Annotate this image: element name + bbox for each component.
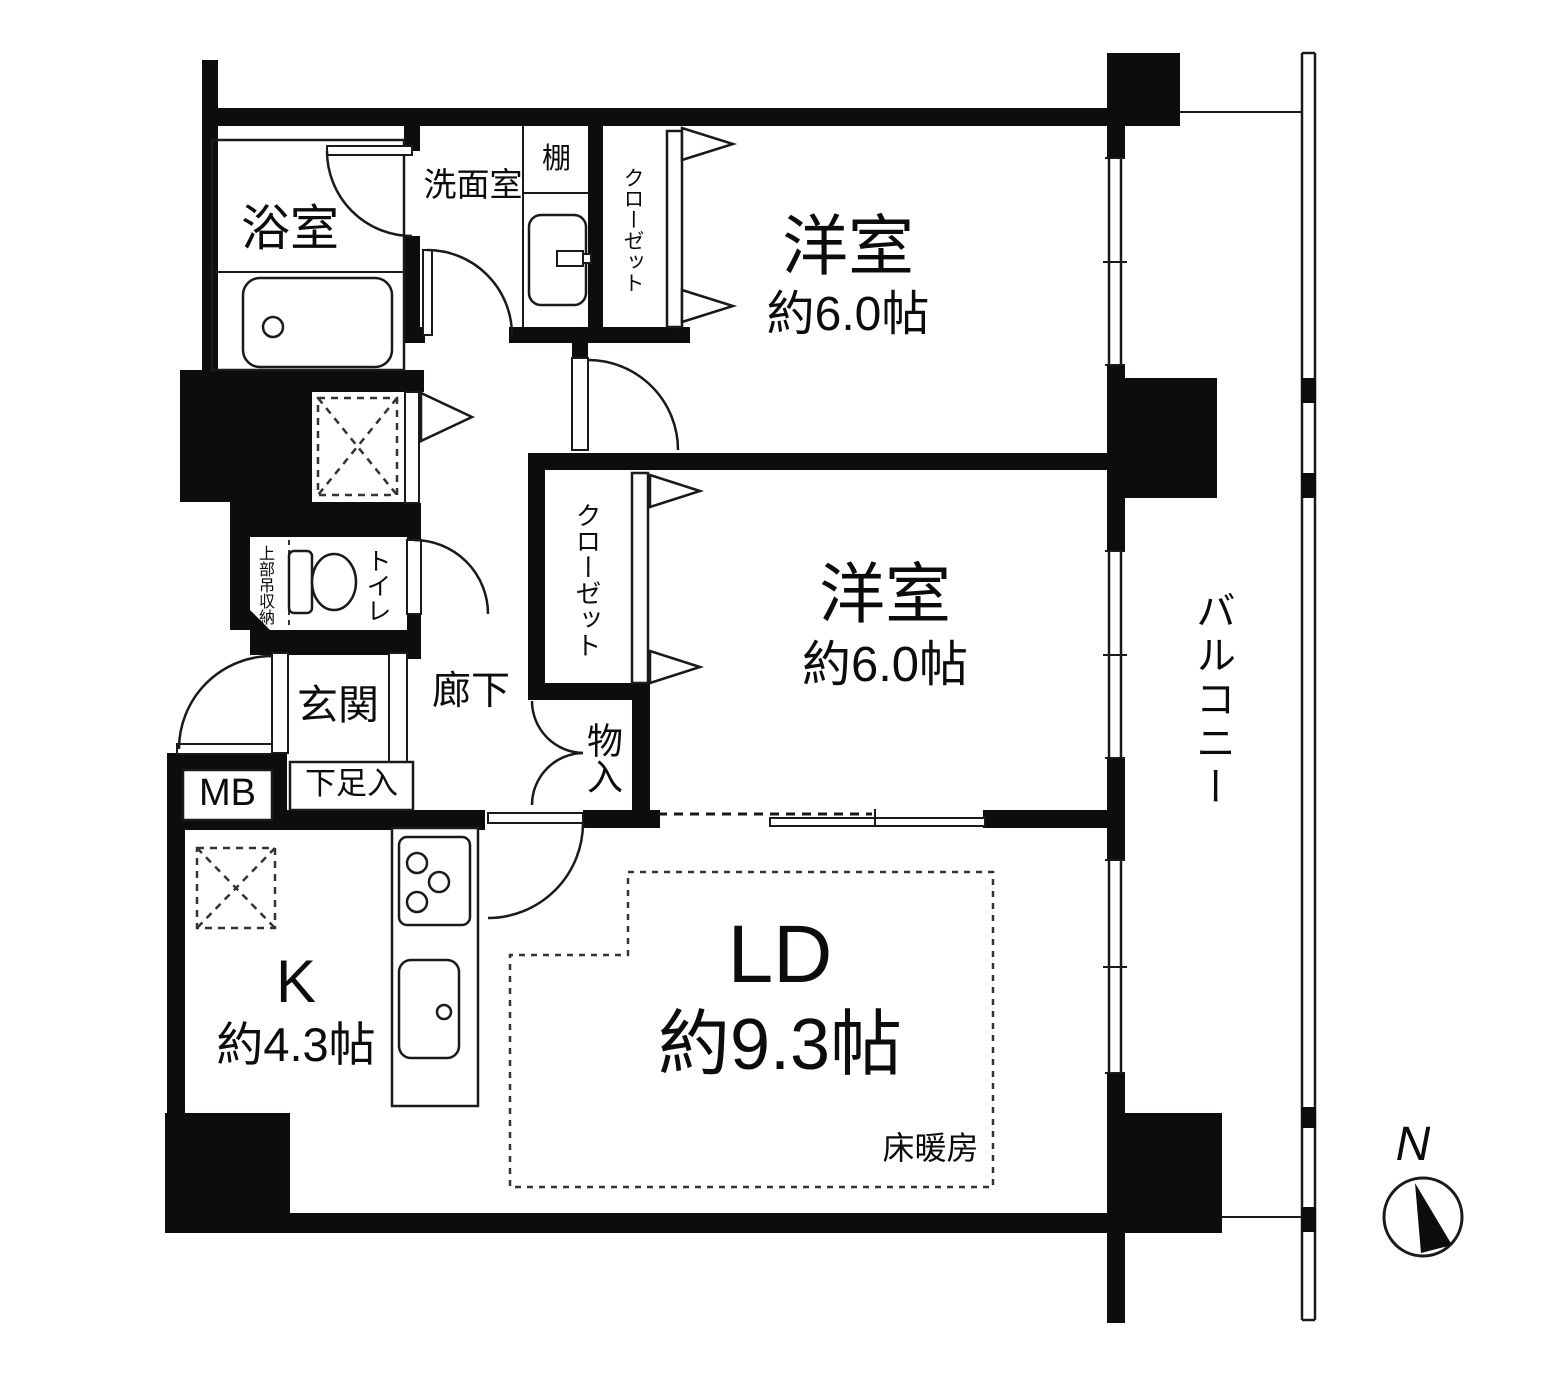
toilet-door-arc bbox=[414, 540, 488, 614]
compass bbox=[1384, 1178, 1462, 1256]
stove-burner-1 bbox=[407, 853, 427, 873]
wall-toilet-top bbox=[250, 502, 420, 537]
wall-above-bedroom1-door bbox=[572, 343, 588, 358]
washroom-door-opening bbox=[425, 327, 509, 343]
bathroom-door-leaf bbox=[327, 146, 412, 155]
toilet-label: トイレ bbox=[364, 537, 389, 633]
bedroom1-door-leaf bbox=[572, 358, 588, 450]
railing-block-2 bbox=[1301, 473, 1316, 498]
living-dining-size: 約9.3帖 bbox=[605, 1008, 955, 1084]
storage-door-arc-upper bbox=[532, 701, 583, 753]
entrance-label: 玄関 bbox=[279, 684, 397, 727]
wall-storage-right bbox=[632, 700, 650, 810]
kitchen-name: K bbox=[181, 950, 411, 1013]
wall-right-5 bbox=[1107, 1073, 1125, 1113]
railing-block-1 bbox=[1301, 378, 1316, 403]
wall-right-3 bbox=[1107, 498, 1125, 551]
shelf-label: 棚 bbox=[523, 144, 590, 174]
window-bedroom-top bbox=[1103, 158, 1127, 365]
wall-ld-top-right bbox=[983, 810, 1107, 828]
hallway-label: 廊下 bbox=[412, 672, 530, 713]
basin-faucet-handle bbox=[583, 254, 591, 263]
wall-bottom bbox=[165, 1213, 1222, 1233]
wall-closet-top-left bbox=[588, 126, 603, 327]
ld-door-arc bbox=[488, 823, 583, 918]
wall-right-4 bbox=[1107, 758, 1125, 860]
closet-top-door-triangle-1 bbox=[682, 128, 733, 160]
wall-above-washer bbox=[312, 370, 424, 392]
floor-plan: 浴室 洗面室 棚 クローゼット 洋室 約6.0帖 クローゼット 洋室 約6.0帖… bbox=[0, 0, 1548, 1377]
kitchen-size: 約4.3帖 bbox=[181, 1020, 411, 1069]
toilet-door-leaf bbox=[407, 540, 421, 614]
floor-heating-label: 床暖房 bbox=[858, 1132, 1003, 1166]
window-bedroom-mid bbox=[1103, 551, 1127, 758]
bedroom1-door-arc bbox=[588, 360, 678, 450]
storage-label: 物入 bbox=[584, 707, 620, 809]
railing-block-3 bbox=[1301, 1107, 1316, 1128]
wall-top bbox=[202, 108, 1180, 126]
wall-between-bedrooms bbox=[528, 453, 1108, 470]
wall-right-1 bbox=[1107, 126, 1125, 158]
toilet-upper-storage-label: 上部吊収納 bbox=[256, 539, 272, 631]
railing-block-4 bbox=[1301, 1207, 1316, 1232]
pillar-bottom-right bbox=[1107, 1113, 1222, 1233]
sink-drain bbox=[437, 1005, 451, 1019]
pillar-right-middle bbox=[1107, 378, 1217, 498]
wall-bath-washroom-lower bbox=[404, 236, 420, 343]
wall-right-2 bbox=[1107, 365, 1125, 378]
shoe-cabinet-label: 下足入 bbox=[290, 768, 413, 801]
wall-closet-mid-left bbox=[528, 470, 545, 700]
pillar-bottom-left bbox=[165, 1113, 290, 1213]
wall-toilet-right-upper bbox=[407, 503, 421, 540]
window-living bbox=[1103, 860, 1127, 1073]
living-dining-name: LD bbox=[605, 912, 955, 998]
closet-mid-door-leaf bbox=[632, 473, 648, 683]
stove-burner-3 bbox=[407, 892, 427, 912]
stove-burner-2 bbox=[429, 872, 449, 892]
washroom-label: 洗面室 bbox=[420, 168, 526, 203]
closet-mid-door-triangle-1 bbox=[650, 475, 700, 507]
closet-mid-door-triangle-2 bbox=[650, 651, 700, 683]
entry-door-arc bbox=[179, 656, 272, 749]
sliding-door-panel bbox=[770, 818, 985, 826]
wall-closet-mid-bottom bbox=[528, 683, 650, 700]
closet-mid-label: クローゼット bbox=[574, 492, 600, 667]
wall-toilet-left bbox=[230, 502, 250, 630]
washer-door-leaf bbox=[405, 392, 419, 503]
compass-north-label: N bbox=[1383, 1120, 1443, 1170]
ld-door-leaf bbox=[488, 813, 583, 823]
washroom-door-arc bbox=[427, 250, 512, 335]
wall-toilet-right-lower bbox=[407, 614, 421, 659]
windows bbox=[1103, 158, 1127, 1073]
wall-ld-top-left bbox=[583, 810, 660, 828]
entry-door-leaf bbox=[177, 744, 272, 754]
closet-top-door-leaf bbox=[667, 131, 682, 327]
bedroom-top-size: 約6.0帖 bbox=[690, 290, 1006, 340]
fridge-space-x bbox=[197, 848, 275, 928]
pillar-top-right bbox=[1107, 53, 1180, 126]
toilet-tank bbox=[289, 551, 312, 613]
bedroom-top-name: 洋室 bbox=[690, 212, 1006, 281]
bedroom-mid-size: 約6.0帖 bbox=[730, 640, 1040, 691]
washroom-door-leaf bbox=[423, 250, 432, 335]
wall-left-upper bbox=[202, 126, 218, 388]
pillar-left-middle bbox=[180, 370, 312, 502]
washer-door-triangle bbox=[421, 393, 472, 441]
closet-top-label: クローゼット bbox=[622, 150, 643, 310]
washer-space-x bbox=[318, 398, 397, 495]
meter-box-label: MB bbox=[183, 774, 272, 814]
basin-faucet bbox=[557, 251, 583, 266]
toilet-bowl bbox=[312, 554, 356, 610]
wall-right-below-bottom bbox=[1107, 1233, 1125, 1323]
bedroom-mid-name: 洋室 bbox=[730, 560, 1040, 629]
storage-door-arc-lower bbox=[532, 753, 583, 805]
balcony-label: バルコニー bbox=[1192, 580, 1232, 820]
bathroom-label: 浴室 bbox=[210, 204, 370, 255]
